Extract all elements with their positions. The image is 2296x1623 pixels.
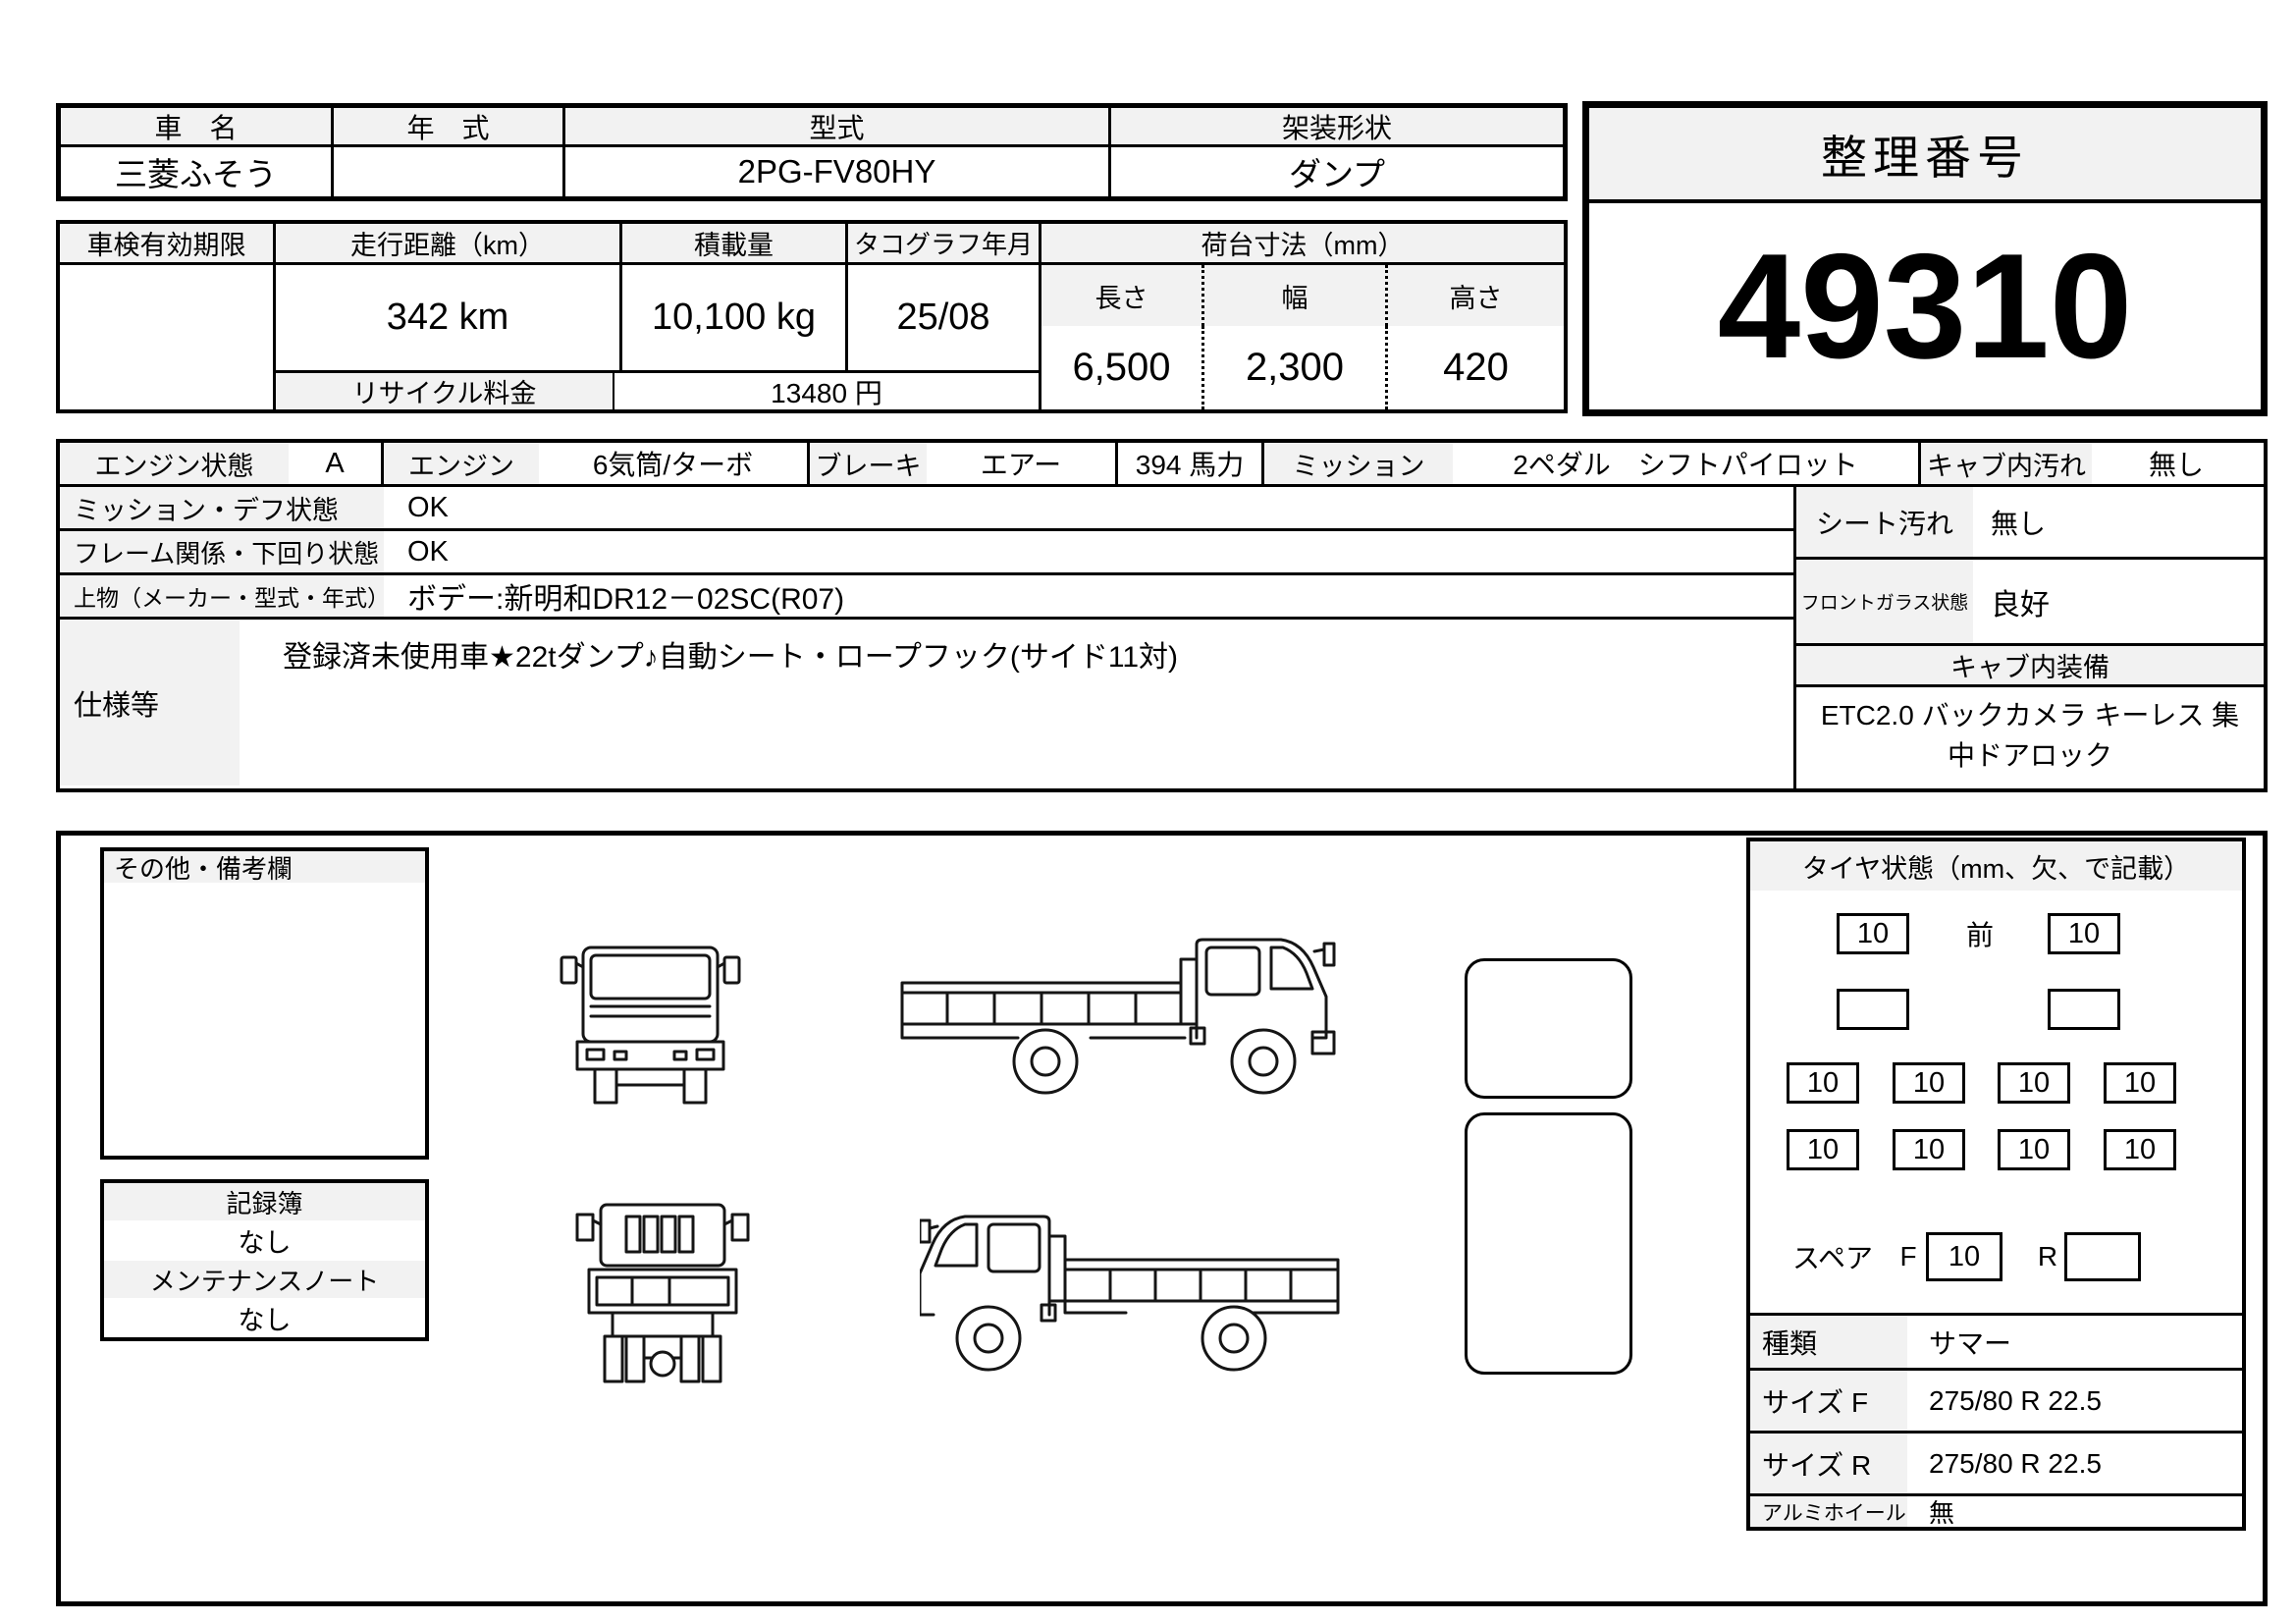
mileage-header: 走行距離（km） xyxy=(276,224,622,262)
tire-rear2-box-4: 10 xyxy=(2104,1129,2176,1170)
tire-front-left-box: 10 xyxy=(1837,913,1909,954)
tire-size-r-label: サイズ R xyxy=(1750,1434,1907,1493)
tire-panel: タイヤ状態（mm、欠、で記載） 10 前 10 10 10 10 10 10 1… xyxy=(1746,838,2246,1531)
condition-left-column: ミッション・デフ状態 OK フレーム関係・下回り状態 OK 上物（メーカー・型式… xyxy=(60,487,1793,788)
engine-value: 6気筒/ターボ xyxy=(539,443,807,484)
tire-rear1-box-4: 10 xyxy=(2104,1062,2176,1104)
body-style-header: 架装形状 xyxy=(1111,108,1563,144)
spec-notes-label: 仕様等 xyxy=(60,620,240,785)
tire-panel-title: タイヤ状態（mm、欠、で記載） xyxy=(1750,841,2242,891)
upper-body-value: ボデー:新明和DR12－02SC(R07) xyxy=(384,575,1790,617)
vehicle-auction-sheet: 車 名 年 式 型式 架装形状 三菱ふそう 2PG-FV80HY ダンプ 整理番… xyxy=(0,0,2296,1623)
tire-size-f-value: 275/80 R 22.5 xyxy=(1907,1371,2242,1431)
spec-table: 車検有効期限 走行距離（km） 積載量 タコグラフ年月 荷台寸法（mm） 342… xyxy=(56,220,1568,413)
shaken-header: 車検有効期限 xyxy=(60,224,276,262)
tire-rear1-box-1: 10 xyxy=(1787,1062,1859,1104)
bed-length-label: 長さ xyxy=(1041,265,1201,326)
spare-label: スペア xyxy=(1778,1232,1888,1281)
truck-side-left-view-drawing xyxy=(920,1205,1351,1380)
bed-length-value: 6,500 xyxy=(1041,326,1201,409)
serial-number-box: 整理番号 49310 xyxy=(1582,101,2268,416)
mileage-value: 342 km xyxy=(276,265,622,373)
remarks-box: その他・備考欄 xyxy=(100,847,429,1160)
spare-f-label: F xyxy=(1894,1232,1923,1281)
spare-f-box: 10 xyxy=(1926,1232,2002,1281)
tire-rear1-box-3: 10 xyxy=(1998,1062,2070,1104)
cab-equipment-header: キャブ内装備 xyxy=(1796,646,2264,687)
car-name-value: 三菱ふそう xyxy=(61,147,334,196)
tachograph-header: タコグラフ年月 xyxy=(848,224,1041,262)
spare-r-box xyxy=(2064,1232,2141,1281)
engine-state-value: A xyxy=(289,443,381,484)
cab-equipment-value: ETC2.0 バックカメラ キーレス 集中ドアロック xyxy=(1796,687,2264,785)
year-value xyxy=(334,147,565,196)
year-header: 年 式 xyxy=(334,108,565,144)
bottom-section: その他・備考欄 記録簿 なし メンテナンスノート なし xyxy=(56,831,2268,1606)
condition-row-1: エンジン状態 A エンジン 6気筒/ターボ ブレーキ エアー 394 馬力 ミッ… xyxy=(60,443,2264,487)
cab-dirt-label: キャブ内汚れ xyxy=(1921,443,2092,484)
record-book-label: 記録簿 xyxy=(104,1183,425,1220)
tire-mid-left-box xyxy=(1837,989,1909,1030)
frame-label: フレーム関係・下回り状態 xyxy=(60,531,384,572)
bed-width-value: 2,300 xyxy=(1201,326,1385,409)
windshield-value: 良好 xyxy=(1973,560,2264,643)
spare-r-label: R xyxy=(2033,1232,2062,1281)
alloy-wheel-label: アルミホイール xyxy=(1750,1496,1907,1527)
alloy-wheel-value: 無 xyxy=(1907,1496,2242,1527)
power-value: 394 馬力 xyxy=(1118,443,1264,484)
record-book-value: なし xyxy=(104,1220,425,1261)
tire-type-value: サマー xyxy=(1907,1316,2242,1368)
transmission-label: ミッション xyxy=(1264,443,1453,484)
truck-front-view-drawing xyxy=(558,942,743,1106)
brake-value: エアー xyxy=(927,443,1115,484)
transmission-value: 2ペダル シフトパイロット xyxy=(1453,443,1918,484)
bed-top-view-upper-drawing xyxy=(1465,958,1632,1099)
seat-dirt-value: 無し xyxy=(1973,487,2264,557)
serial-number-label: 整理番号 xyxy=(1589,108,2261,203)
truck-side-right-view-drawing xyxy=(896,934,1350,1103)
remarks-title: その他・備考欄 xyxy=(104,851,425,883)
payload-header: 積載量 xyxy=(622,224,848,262)
serial-number-value: 49310 xyxy=(1589,203,2261,409)
bed-width-label: 幅 xyxy=(1201,265,1385,326)
mission-diff-value: OK xyxy=(384,487,1790,528)
tire-type-table: 種類 サマー サイズ F 275/80 R 22.5 サイズ R 275/80 … xyxy=(1750,1313,2242,1527)
bed-height-label: 高さ xyxy=(1385,265,1564,326)
maintenance-note-label: メンテナンスノート xyxy=(104,1261,425,1298)
condition-right-column: シート汚れ 無し フロントガラス状態 良好 キャブ内装備 ETC2.0 バックカ… xyxy=(1793,487,2264,788)
payload-value: 10,100 kg xyxy=(622,265,848,373)
condition-section: エンジン状態 A エンジン 6気筒/ターボ ブレーキ エアー 394 馬力 ミッ… xyxy=(56,439,2268,792)
bed-top-view-lower-drawing xyxy=(1465,1112,1632,1375)
cab-dirt-value: 無し xyxy=(2092,443,2261,484)
tire-mid-right-box xyxy=(2048,989,2120,1030)
mission-diff-label: ミッション・デフ状態 xyxy=(60,487,384,528)
truck-rear-view-drawing xyxy=(573,1201,752,1394)
tire-rear1-box-2: 10 xyxy=(1893,1062,1965,1104)
model-value: 2PG-FV80HY xyxy=(565,147,1111,196)
bed-dimensions-header: 荷台寸法（mm） xyxy=(1041,224,1564,262)
upper-body-label: 上物（メーカー・型式・年式） xyxy=(60,575,384,617)
body-style-value: ダンプ xyxy=(1111,147,1563,196)
tire-type-label: 種類 xyxy=(1750,1316,1907,1368)
recycle-fee-label: リサイクル料金 xyxy=(276,373,614,409)
tire-rear2-box-3: 10 xyxy=(1998,1129,2070,1170)
tire-front-label: 前 xyxy=(1943,913,2017,954)
tire-front-right-box: 10 xyxy=(2048,913,2120,954)
tire-rear2-box-1: 10 xyxy=(1787,1129,1859,1170)
tire-size-f-label: サイズ F xyxy=(1750,1371,1907,1431)
maintenance-note-value: なし xyxy=(104,1298,425,1337)
tire-size-r-value: 275/80 R 22.5 xyxy=(1907,1434,2242,1493)
bed-height-value: 420 xyxy=(1385,326,1564,409)
shaken-value xyxy=(60,265,276,409)
record-book-box: 記録簿 なし メンテナンスノート なし xyxy=(100,1179,429,1341)
tachograph-value: 25/08 xyxy=(848,265,1041,373)
car-name-header: 車 名 xyxy=(61,108,334,144)
seat-dirt-label: シート汚れ xyxy=(1796,487,1973,557)
engine-label: エンジン xyxy=(384,443,539,484)
spec-notes-value: 登録済未使用車★22tダンプ♪自動シート・ロープフック(サイド11対) xyxy=(240,620,1793,785)
engine-state-label: エンジン状態 xyxy=(60,443,289,484)
tire-rear2-box-2: 10 xyxy=(1893,1129,1965,1170)
frame-value: OK xyxy=(384,531,1790,572)
recycle-fee-value: 13480 円 xyxy=(614,373,1041,409)
model-header: 型式 xyxy=(565,108,1111,144)
title-table: 車 名 年 式 型式 架装形状 三菱ふそう 2PG-FV80HY ダンプ xyxy=(56,103,1568,201)
windshield-label: フロントガラス状態 xyxy=(1796,560,1973,643)
brake-label: ブレーキ xyxy=(810,443,927,484)
